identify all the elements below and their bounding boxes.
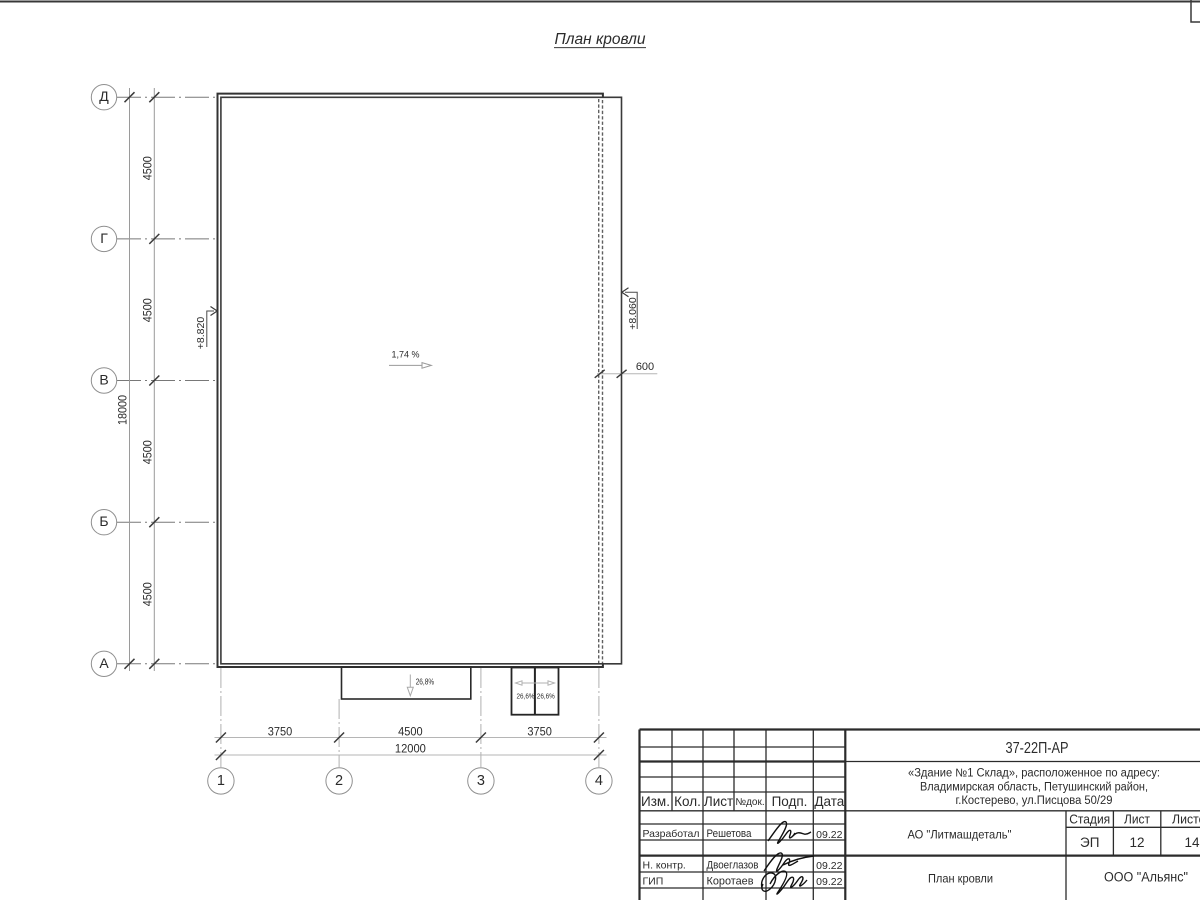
svg-text:План кровли: План кровли bbox=[555, 31, 646, 48]
svg-text:600: 600 bbox=[636, 361, 654, 373]
svg-text:4500: 4500 bbox=[141, 156, 155, 180]
svg-text:+8.060: +8.060 bbox=[627, 297, 639, 330]
svg-text:12000: 12000 bbox=[395, 742, 426, 756]
svg-text:АО "Литмашдеталь": АО "Литмашдеталь" bbox=[908, 828, 1012, 842]
svg-text:Д: Д bbox=[99, 88, 109, 104]
svg-text:Г: Г bbox=[100, 230, 108, 246]
svg-text:12: 12 bbox=[1129, 835, 1144, 850]
svg-text:ГИП: ГИП bbox=[643, 876, 664, 888]
svg-text:В: В bbox=[99, 372, 108, 388]
svg-text:1: 1 bbox=[217, 773, 225, 789]
svg-text:4500: 4500 bbox=[398, 725, 423, 739]
svg-text:3750: 3750 bbox=[527, 725, 552, 739]
svg-text:2: 2 bbox=[335, 773, 343, 789]
svg-text:№док.: №док. bbox=[735, 797, 764, 808]
svg-text:Решетова: Решетова bbox=[707, 828, 753, 840]
svg-text:4500: 4500 bbox=[141, 298, 155, 322]
svg-text:План кровли: План кровли bbox=[928, 872, 993, 886]
svg-text:Стадия: Стадия bbox=[1069, 813, 1110, 827]
svg-text:26,8%: 26,8% bbox=[416, 678, 434, 687]
svg-text:Коротаев: Коротаев bbox=[707, 876, 754, 888]
svg-text:09.22: 09.22 bbox=[816, 860, 842, 872]
svg-text:26,6%: 26,6% bbox=[537, 694, 555, 701]
svg-text:4500: 4500 bbox=[141, 582, 155, 606]
svg-text:4500: 4500 bbox=[141, 440, 155, 464]
svg-text:4: 4 bbox=[595, 773, 603, 789]
svg-text:Владимирская область, Петушинс: Владимирская область, Петушинский район, bbox=[920, 782, 1148, 794]
svg-text:Лист: Лист bbox=[704, 794, 733, 809]
svg-text:г.Костерево, ул.Писцова 50/29: г.Костерево, ул.Писцова 50/29 bbox=[956, 795, 1113, 807]
svg-text:Разработал: Разработал bbox=[643, 828, 700, 840]
svg-text:Листов: Листов bbox=[1172, 813, 1200, 827]
svg-text:09.22: 09.22 bbox=[816, 876, 842, 888]
svg-text:+8.820: +8.820 bbox=[195, 317, 207, 350]
svg-text:37-22П-АР: 37-22П-АР bbox=[1006, 740, 1069, 757]
svg-text:Лист: Лист bbox=[1124, 813, 1150, 827]
svg-text:ООО "Альянс": ООО "Альянс" bbox=[1104, 870, 1188, 885]
svg-text:18000: 18000 bbox=[116, 395, 130, 425]
svg-text:09.22: 09.22 bbox=[816, 829, 842, 841]
svg-text:Кол.: Кол. bbox=[674, 794, 701, 809]
svg-text:Изм.: Изм. bbox=[641, 794, 670, 809]
svg-text:Дата: Дата bbox=[814, 794, 844, 809]
svg-text:26,6%: 26,6% bbox=[517, 694, 535, 701]
svg-text:3750: 3750 bbox=[268, 725, 293, 739]
svg-text:1,74 %: 1,74 % bbox=[391, 350, 419, 360]
svg-text:А: А bbox=[99, 655, 109, 671]
svg-text:Н. контр.: Н. контр. bbox=[643, 860, 686, 872]
svg-text:Б: Б bbox=[99, 513, 108, 529]
svg-text:3: 3 bbox=[477, 773, 485, 789]
svg-text:ЭП: ЭП bbox=[1080, 835, 1099, 850]
svg-text:14: 14 bbox=[1184, 835, 1200, 850]
svg-text:«Здание №1 Склад», расположенн: «Здание №1 Склад», расположенное по адре… bbox=[908, 768, 1160, 780]
svg-text:Подп.: Подп. bbox=[772, 794, 808, 809]
svg-text:Двоеглазов: Двоеглазов bbox=[707, 860, 759, 872]
